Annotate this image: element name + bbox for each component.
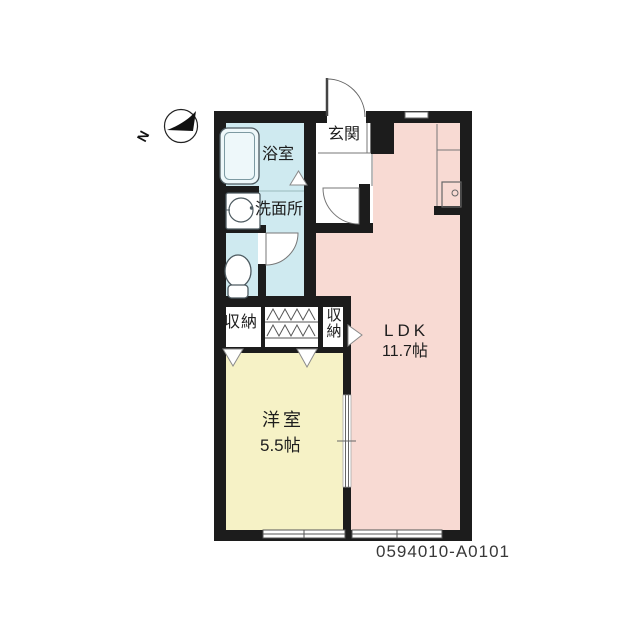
ldk-size-label: 11.7帖 <box>382 343 428 361</box>
kitchen-window <box>405 112 428 118</box>
bathroom-label: 浴室 <box>262 146 294 164</box>
closet-right-label: 収納 <box>324 307 341 339</box>
floor-plan: N 玄関 浴室 洗面所 収納 収納 LDK 11.7帖 洋室 5.5帖 0594… <box>0 0 640 640</box>
entrance-label: 玄関 <box>328 126 360 144</box>
floor-plan-drawing: N <box>0 0 640 640</box>
plan-code: 0594010-A0101 <box>376 543 510 562</box>
bathtub-icon <box>220 128 259 184</box>
ldk-window <box>352 530 442 538</box>
toilet-icon <box>225 255 251 298</box>
compass-north-icon: N <box>134 110 198 145</box>
compass-label: N <box>134 128 153 144</box>
closet-hatch <box>265 309 318 338</box>
entrance-door-arc <box>327 78 365 117</box>
western-room-label: 洋室 <box>262 411 304 431</box>
ldk-label: LDK <box>384 322 429 341</box>
hall-door-arc <box>323 188 359 224</box>
western-room-window <box>263 530 345 538</box>
closet-left-label: 収納 <box>224 314 258 332</box>
washroom-label: 洗面所 <box>255 201 303 219</box>
western-room-size-label: 5.5帖 <box>260 437 301 456</box>
